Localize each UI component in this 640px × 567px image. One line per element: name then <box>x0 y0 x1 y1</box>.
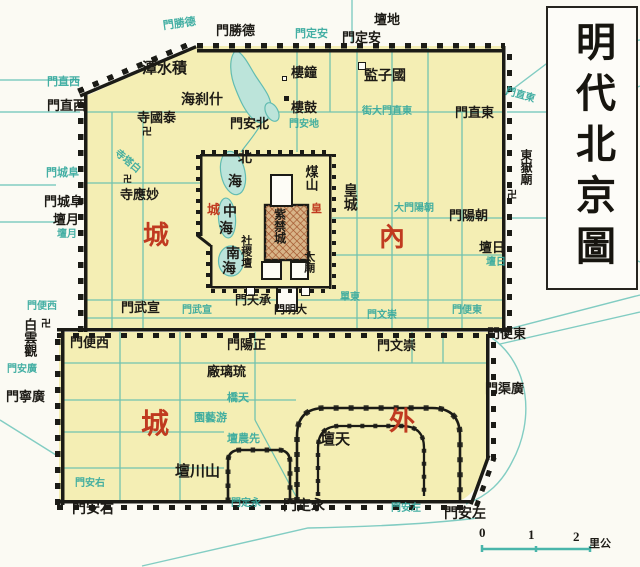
zhonghai-label-hai: 海 <box>219 223 233 238</box>
zhonglou-label: 樓鐘 <box>291 66 317 80</box>
yongdingmen-street-label: 門定永 <box>231 499 261 510</box>
map-title: 明代北京圖 <box>572 21 612 288</box>
youyiyuan-label: 園藝游 <box>194 413 227 425</box>
dongzhimen-inner-street-label: 街大門直東 <box>362 107 412 118</box>
map-title-box: 明代北京圖 <box>546 6 638 290</box>
nanhai-label-hai: 海 <box>222 263 236 278</box>
jishuitan-label: 潭水積 <box>142 62 187 78</box>
baiyunguan-swastika: 卍 <box>41 320 51 331</box>
beihai-label-bei: 北 <box>238 152 252 167</box>
dongyuemiao-label: 東嶽廟 <box>518 149 533 185</box>
xuanwumen-label: 門武宣 <box>121 301 160 315</box>
neicheng-label-nei: 內 <box>379 224 405 251</box>
chengtianmen-east-marker <box>301 287 310 296</box>
chaoyangmen-street-label: 大門陽朝 <box>394 204 434 215</box>
outer-wall-east <box>486 334 496 460</box>
baiyunguan-label: 白雲觀 <box>21 318 37 357</box>
shejitan-block <box>262 262 281 279</box>
ditan-label: 壇地 <box>374 13 400 27</box>
beianmen-label: 門安北 <box>230 117 269 131</box>
waicheng-label-cheng: 城 <box>141 410 169 439</box>
neicheng-label-cheng: 城 <box>143 222 169 249</box>
damingmen-label: 門明大 <box>274 305 307 317</box>
scale-bar <box>482 545 590 552</box>
zhonghai-label-zhong: 中 <box>223 206 237 221</box>
ming-beijing-map: 壇地門定安門定安門勝德門勝德門直東門直東門直西門直西潭水積海刹什樓鐘樓鼓監子國寺… <box>0 0 640 567</box>
miaoyingsi-swastika: 卍 <box>123 175 132 184</box>
zuoanmen-label: 門安左 <box>444 508 486 523</box>
outer-wall-west <box>55 331 65 505</box>
ritan-label: 壇日 <box>479 241 505 255</box>
xibianmen-label: 門便西 <box>70 336 109 350</box>
yuetan-street-label: 壇月 <box>57 230 77 241</box>
xizhimen-street-label: 門直西 <box>47 77 80 89</box>
meishan-hill-block <box>271 175 292 206</box>
yongdingmen-label: 門定永 <box>283 500 325 515</box>
imperial-wall-north <box>201 150 332 157</box>
scale-tick-0: 0 <box>479 526 486 540</box>
scale-tick-1: 1 <box>528 528 535 542</box>
gulou-label: 樓鼓 <box>291 101 317 115</box>
zijincheng-label: 紫禁城 <box>271 208 287 244</box>
chengtianmen-label: 門天承 <box>235 294 271 307</box>
waicheng-label-wai: 外 <box>389 408 415 435</box>
andingmen-street-label: 門定安 <box>295 29 328 41</box>
taiguosi-label: 寺國泰 <box>137 111 176 125</box>
zhengyangmen-label: 門陽正 <box>227 338 266 352</box>
shejitan-label: 社稷壇 <box>238 235 252 268</box>
guangqumen-label: 門渠廣 <box>485 382 524 396</box>
huangcheng-red-huang: 皇 <box>311 204 322 216</box>
chongwenmen-label: 門文崇 <box>377 339 416 353</box>
guangningmen-label: 門寧廣 <box>6 390 45 404</box>
inner-wall-south <box>57 328 507 338</box>
meishan-label: 煤山 <box>302 165 320 191</box>
chaoyangmen-label: 門陽朝 <box>449 209 488 223</box>
dongdan-street-label: 單東 <box>340 293 360 304</box>
miaoyingsi-label: 寺應妙 <box>120 188 159 202</box>
imperial-wall-west-lower <box>206 245 213 288</box>
taimiao-label: 太廟 <box>301 251 315 273</box>
dongbianmen-street-label: 門便東 <box>452 306 482 317</box>
scale-tick-2: 2 <box>573 530 580 544</box>
yuetan-label: 壇月 <box>53 213 79 227</box>
ritan-street-label: 壇日 <box>486 258 506 269</box>
inner-wall-west <box>78 94 88 332</box>
liulichang-label: 廠璃琉 <box>207 365 246 379</box>
tiantan-label: 壇天 <box>320 433 350 449</box>
shichahai-label: 海刹什 <box>181 94 223 109</box>
zuoanmen-street-label: 門安左 <box>391 504 421 515</box>
chongwenmen-street-label: 門文崇 <box>367 311 397 322</box>
huangcheng-red-cheng: 城 <box>207 203 220 217</box>
beihai-label-hai: 海 <box>228 176 242 191</box>
guozijian-label: 監子國 <box>364 70 406 85</box>
xiannongtan-label: 壇農先 <box>227 434 260 446</box>
tianqiao-label: 橋天 <box>227 393 249 405</box>
dongyuemiao-swastika: 卍 <box>507 191 517 202</box>
xibianmen-street-label: 門便西 <box>27 302 57 313</box>
deshengmen-label: 門勝德 <box>216 24 255 38</box>
imperial-wall-west <box>196 154 203 236</box>
dianmen-street-label: 門安地 <box>289 120 319 131</box>
shanchuantan-label: 壇川山 <box>175 465 220 481</box>
youanmen-label: 門安右 <box>72 503 114 518</box>
gulou-marker <box>284 96 289 101</box>
dongzhimen-label: 門直東 <box>455 106 494 120</box>
xuanwumen-street-label: 門武宣 <box>182 306 212 317</box>
dongbianmen-label: 門便東 <box>487 327 526 341</box>
scale-unit: 里公 <box>589 539 611 551</box>
guangningmen-street-label: 門安廣 <box>7 365 37 376</box>
taiguosi-swastika: 卍 <box>142 128 152 139</box>
huangcheng-label: 皇城 <box>337 183 361 211</box>
andingmen-label: 門定安 <box>342 31 381 45</box>
fuchengmen-label: 門城阜 <box>44 195 83 209</box>
youanmen-street-label: 門安右 <box>75 479 105 490</box>
imperial-wall-south <box>211 286 331 293</box>
imperial-wall-east <box>329 154 336 289</box>
zhonglou-marker <box>282 76 287 81</box>
fuchengmen-street-label: 門城阜 <box>46 168 79 180</box>
xizhimen-label: 門直西 <box>47 99 86 113</box>
